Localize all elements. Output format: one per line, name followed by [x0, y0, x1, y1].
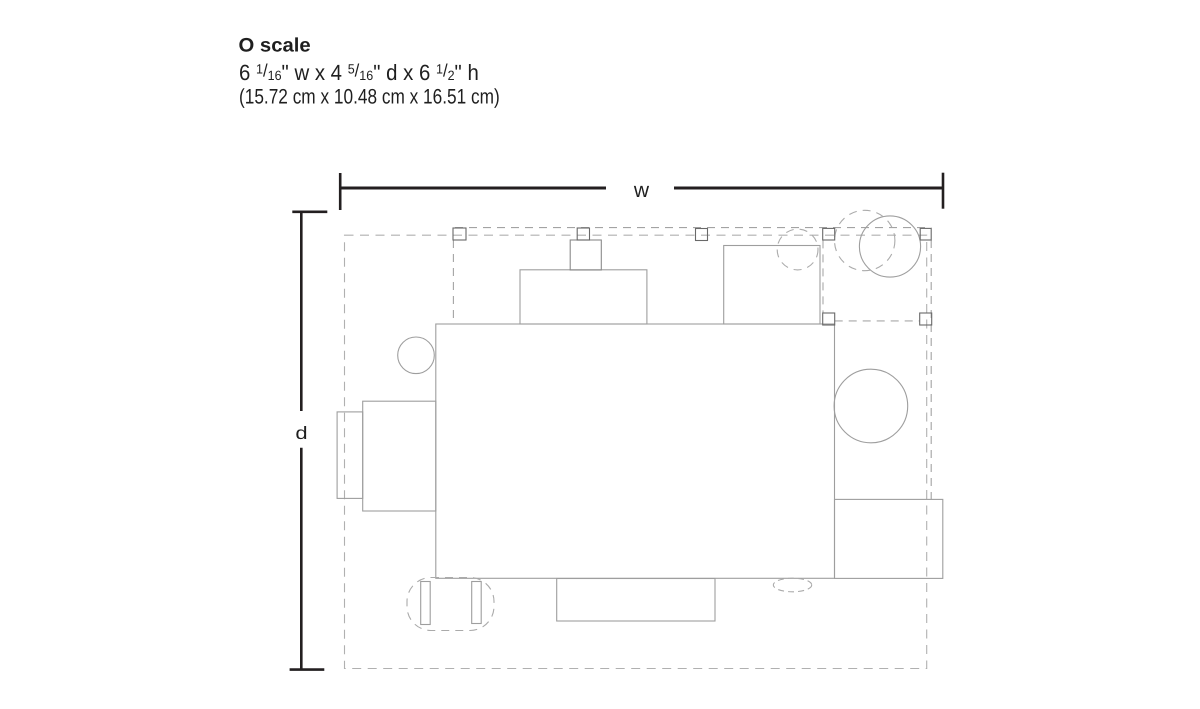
svg-text:(15.72 cm x 10.48 cm x 16.51 c: (15.72 cm x 10.48 cm x 16.51 cm) [239, 85, 500, 108]
svg-text:w: w [633, 179, 650, 202]
svg-text:O scale: O scale [239, 35, 311, 57]
svg-text:d: d [295, 423, 307, 443]
